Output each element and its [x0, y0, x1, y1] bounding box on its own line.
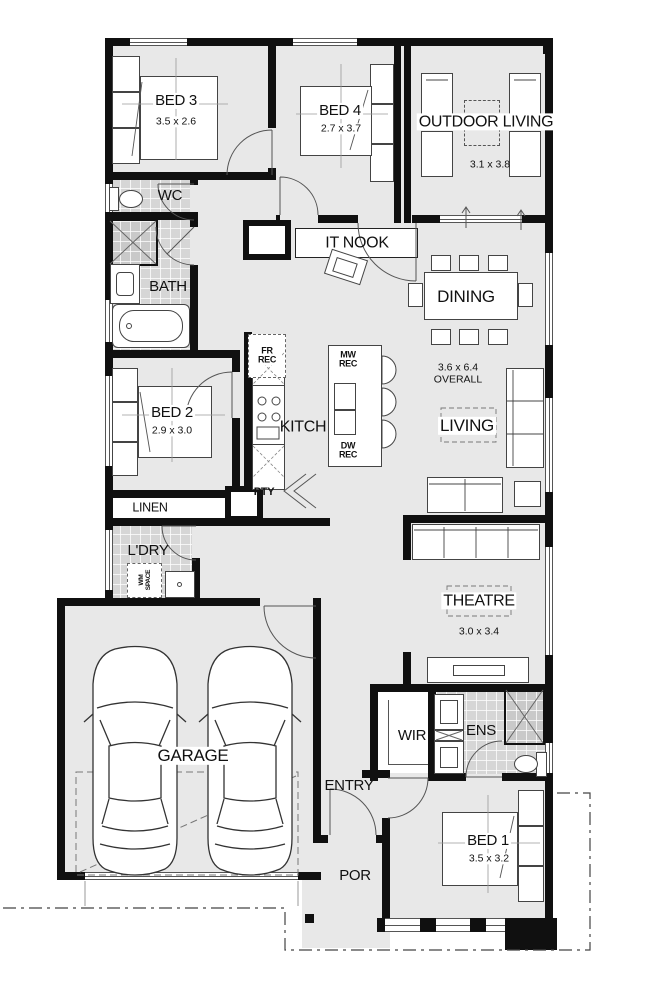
laundry-trough-plug [177, 582, 182, 587]
window-laundry-left [105, 530, 113, 590]
window-bed1-bottom-2 [436, 918, 470, 932]
bed1-side-table [518, 790, 544, 826]
marker-outdoor-corner [543, 45, 552, 54]
wall-bed2-right-a [232, 358, 240, 372]
dining-chair [488, 329, 508, 345]
bathtub-plug [126, 323, 132, 329]
wall-wc-bath-divider [105, 212, 198, 220]
bed4-mattress [300, 86, 372, 156]
room-label-outdoor-living: OUTDOOR LIVING [417, 113, 555, 130]
wall-theatre-nib-v [403, 515, 411, 560]
wall-bed3-right-a [268, 46, 276, 128]
room-label-bed3: BED 3 [153, 93, 199, 109]
room-label-bed4: BED 4 [317, 103, 363, 119]
ens-vanity-sink-1 [440, 700, 458, 724]
wall-bath-right-b [190, 265, 198, 352]
cooktop [252, 385, 285, 445]
room-label-bath: BATH [147, 279, 189, 295]
garage-door-opening [85, 872, 298, 880]
room-label-wir: WIR [396, 728, 428, 744]
bed3-headboard [112, 56, 140, 92]
pantry-label: PTY [252, 487, 277, 499]
bed3-side-table [112, 128, 140, 164]
wall-tv-nib [403, 652, 411, 684]
living-sofa-bottom [427, 477, 503, 513]
wall-bed1-bottom-a [377, 918, 385, 932]
room-label-dining: DINING [435, 288, 497, 306]
bed1-side-table-2 [518, 866, 544, 902]
window-living-right [545, 398, 553, 492]
bed2-headboard [112, 402, 138, 442]
wall-bed2-right-b [232, 418, 240, 490]
floor-garage [57, 598, 321, 880]
living-overall-dims: 3.6 x 6.4 [436, 362, 480, 373]
window-dining-right [545, 253, 553, 345]
wall-suite-bottom-b [428, 773, 466, 781]
room-dims-theatre: 3.0 x 3.4 [457, 626, 501, 637]
wall-garage-top [57, 598, 260, 606]
room-dims-bed2: 2.9 x 3.0 [150, 425, 194, 436]
wall-bed4-robe [394, 46, 401, 223]
wall-theatre-ens [370, 684, 552, 692]
outdoor-chair [509, 73, 541, 119]
ens-shower-tiles [504, 688, 545, 745]
tv-cabinet-inner [453, 665, 505, 676]
dining-chair [408, 283, 423, 307]
wall-corner-step [505, 918, 557, 950]
dishwasher-recess-label: DW REC [333, 442, 363, 461]
wall-linen-bottom [105, 518, 227, 526]
fridge-recess-label: FR REC [252, 347, 282, 366]
wall-entry-bottom-b [376, 835, 390, 843]
window-bed4-top [293, 38, 357, 46]
wall-hall-b [318, 215, 358, 223]
dining-chair [431, 329, 451, 345]
bath-shower-tiles [108, 219, 158, 266]
room-label-garage: GARAGE [156, 747, 231, 765]
wc-toilet-bowl [119, 190, 143, 208]
room-label-bed2: BED 2 [149, 405, 195, 421]
ens-toilet-bowl [514, 755, 538, 773]
room-dims-outdoor-living: 3.1 x 3.8 [468, 159, 512, 170]
room-label-kitchen: KITCH [278, 418, 329, 435]
theatre-sofa [412, 524, 540, 560]
room-label-living: LIVING [438, 417, 496, 435]
wall-bed1-bottom-c [470, 918, 486, 932]
bed3-headboard-2 [112, 92, 140, 128]
outdoor-chair [421, 73, 453, 119]
room-label-it-nook: IT NOOK [323, 234, 390, 251]
wall-bath-bed2-divider [105, 350, 240, 358]
room-label-porch: POR [337, 868, 373, 884]
bed4-headboard-2 [370, 104, 394, 144]
wc-cistern [109, 187, 119, 211]
bed4-side-table [370, 144, 394, 182]
hall-cupboard-interior [249, 226, 285, 254]
outdoor-chair [421, 131, 453, 177]
dining-chair [518, 283, 533, 307]
ens-vanity-mid [434, 730, 464, 741]
wall-wc-stub [190, 180, 198, 185]
living-side-table [514, 481, 541, 507]
wall-wir-left [370, 692, 378, 773]
wall-outdoor-left [404, 38, 411, 223]
wall-garage-right [313, 598, 321, 843]
bed2-mattress [138, 386, 212, 458]
island-sink-1 [334, 383, 356, 410]
island-sink-2 [334, 410, 356, 435]
wall-entry-bottom-a [313, 835, 328, 843]
dining-chair [459, 329, 479, 345]
room-label-ens: ENS [464, 723, 498, 739]
floor-plan: BED 3 3.5 x 2.6 BED 4 2.7 x 3.7 OUTDOOR … [0, 0, 650, 1000]
living-overall-label: OVERALL [432, 374, 484, 385]
window-bed1-bottom-1 [385, 918, 420, 932]
wall-bed1-left [382, 818, 390, 920]
bed2-side-table [112, 368, 138, 402]
dining-chair [488, 255, 508, 271]
bed2-side-table-2 [112, 442, 138, 476]
marker-porch [305, 914, 314, 923]
wall-bed2-bottom [105, 490, 240, 498]
window-theatre-right [545, 547, 553, 655]
bath-vanity-sink [116, 272, 134, 296]
wall-bed1-bottom-b [420, 918, 436, 932]
dining-chair [431, 255, 451, 271]
room-dims-bed4: 2.7 x 3.7 [319, 123, 363, 134]
room-dims-bed1: 3.5 x 3.2 [467, 853, 511, 864]
room-label-wc: WC [156, 188, 184, 204]
bed4-headboard [370, 64, 394, 104]
room-label-linen: LINEN [130, 501, 169, 515]
room-dims-bed3: 3.5 x 2.6 [154, 116, 198, 127]
window-bed3-top [130, 38, 187, 46]
living-sofa-right [506, 368, 544, 468]
room-label-bed1: BED 1 [465, 833, 511, 849]
wall-garage-left [57, 598, 65, 880]
wall-bath-right-a [190, 220, 198, 227]
outdoor-chair [509, 131, 541, 177]
floor-porch [302, 843, 390, 948]
room-label-entry: ENTRY [322, 778, 375, 794]
microwave-recess-label: MW REC [333, 351, 363, 370]
bed1-headboard [518, 826, 544, 866]
wall-bed3-bottom [105, 172, 276, 180]
dining-chair [459, 255, 479, 271]
room-label-theatre: THEATRE [441, 592, 516, 609]
wm-space-label: WMSPACE [138, 568, 152, 592]
ens-vanity-sink-2 [440, 747, 458, 768]
window-bed1-bottom-3 [486, 918, 505, 932]
wall-theatre-nib-h [403, 515, 545, 523]
slider-outdoor-living [440, 215, 522, 223]
room-label-laundry: L'DRY [125, 543, 170, 559]
